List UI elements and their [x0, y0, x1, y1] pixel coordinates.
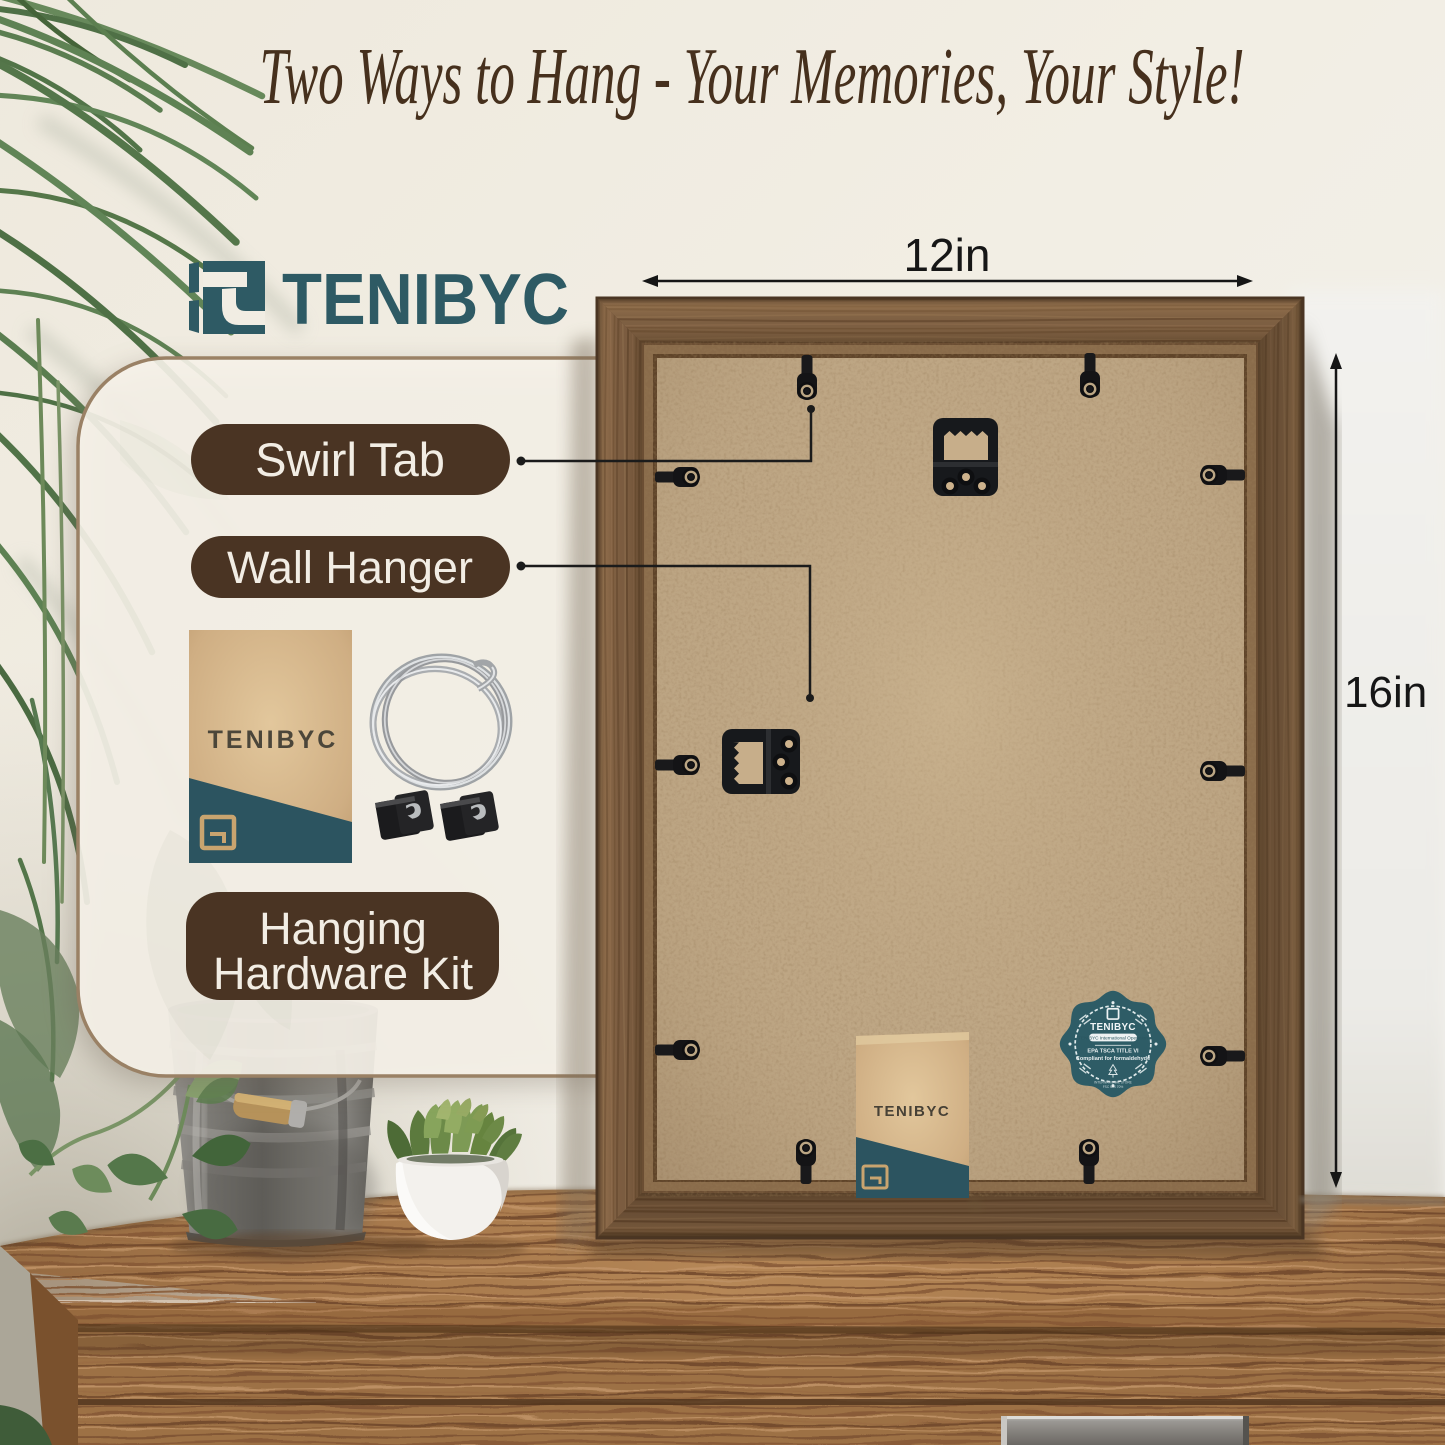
- svg-text:12in: 12in: [904, 229, 991, 281]
- svg-text:Hardware Kit: Hardware Kit: [213, 948, 474, 999]
- svg-text:Wall Hanger: Wall Hanger: [227, 542, 473, 593]
- svg-text:Hanging: Hanging: [259, 903, 427, 954]
- svg-text:TENIBYC: TENIBYC: [208, 726, 339, 754]
- svg-text:Compliant for formaldehyde: Compliant for formaldehyde: [1076, 1056, 1150, 1062]
- svg-text:INTERNATIONAL STORE: INTERNATIONAL STORE: [1094, 1081, 1133, 1085]
- svg-text:TENIBYC: TENIBYC: [1090, 1022, 1136, 1033]
- svg-text:Two Ways to Hang - Your Memori: Two Ways to Hang - Your Memories, Your S…: [260, 33, 1245, 121]
- svg-text:TENIBYC: TENIBYC: [282, 260, 569, 340]
- svg-text:EPA TSCA TITLE VI: EPA TSCA TITLE VI: [1087, 1049, 1139, 1055]
- svg-text:TENIBYC: TENIBYC: [874, 1103, 950, 1120]
- svg-text:TENIBYC International Operatio: TENIBYC International Operation: [1078, 1036, 1148, 1042]
- svg-text:16in: 16in: [1344, 668, 1427, 717]
- svg-text:Swirl Tab: Swirl Tab: [255, 433, 445, 486]
